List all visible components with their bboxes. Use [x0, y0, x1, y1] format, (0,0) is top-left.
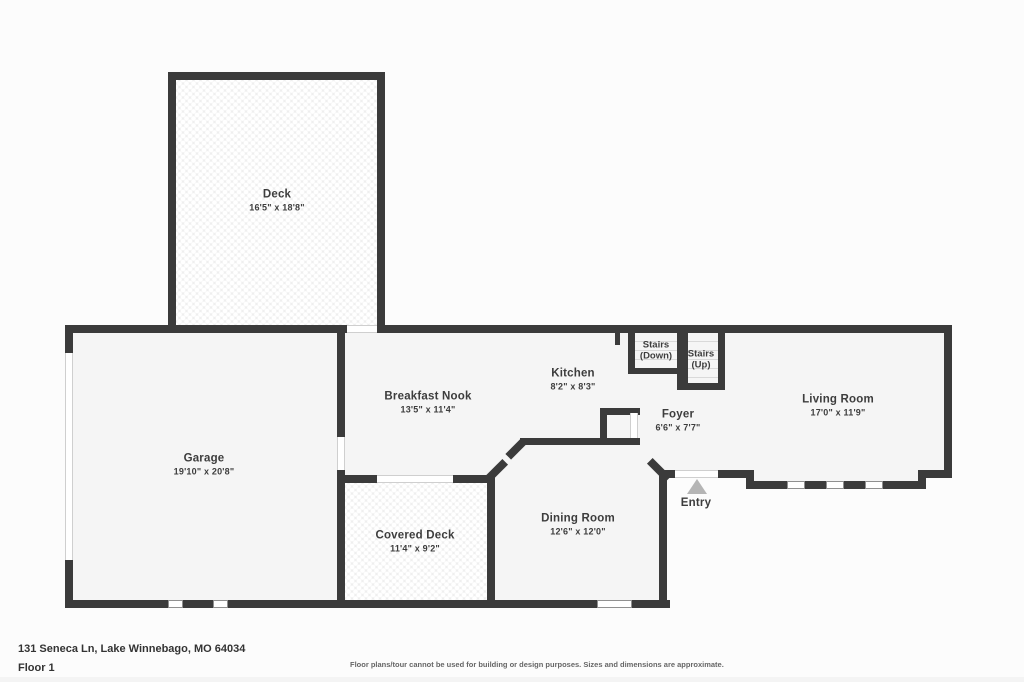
room-name: Foyer: [655, 408, 700, 422]
room-name: Breakfast Nook: [384, 390, 471, 404]
room-dims: 12'6" x 12'0": [541, 526, 615, 538]
room-dims: 8'2" x 8'3": [550, 381, 595, 393]
room-label-living-room: Living Room 17'0" x 11'9": [802, 393, 874, 420]
bottom-strip: [0, 677, 1024, 682]
room-label-stairs-up: Stairs (Up): [678, 349, 724, 372]
wall-segment: [628, 368, 682, 374]
room-name: Dining Room: [541, 512, 615, 526]
wall-segment: [944, 325, 952, 478]
room-label-entry: Entry: [681, 496, 711, 510]
room-label-foyer: Foyer 6'6" x 7'7": [655, 408, 700, 435]
wall-segment: [659, 470, 667, 608]
wall-segment: [487, 475, 495, 608]
room-name: Kitchen: [550, 367, 595, 381]
room-dims: 17'0" x 11'9": [802, 407, 874, 419]
window: [168, 600, 183, 608]
room-label-kitchen: Kitchen 8'2" x 8'3": [550, 367, 595, 394]
wall-segment: [377, 72, 385, 333]
floor-plan: Deck 16'5" x 18'8" Garage 19'10" x 20'8"…: [0, 0, 1024, 682]
room-dims: 19'10" x 20'8": [174, 466, 235, 478]
window: [597, 600, 632, 608]
wall-segment: [677, 383, 725, 390]
wall-segment: [520, 438, 640, 445]
room-label-deck: Deck 16'5" x 18'8": [249, 188, 304, 215]
footer-floor-label: Floor 1: [18, 662, 55, 674]
entry-door-opening: [675, 470, 718, 478]
garage-door: [65, 353, 73, 560]
door-opening: [347, 325, 377, 333]
footer-disclaimer: Floor plans/tour cannot be used for buil…: [350, 660, 724, 669]
room-name: Living Room: [802, 393, 874, 407]
closet-door: [630, 413, 638, 438]
room-name: Garage: [174, 452, 235, 466]
room-label-covered-deck: Covered Deck 11'4" x 9'2": [375, 529, 454, 556]
window: [787, 481, 805, 489]
room-label-garage: Garage 19'10" x 20'8": [174, 452, 235, 479]
entry-arrow-icon: [687, 479, 707, 494]
door-opening: [377, 475, 453, 483]
wall-segment: [337, 333, 345, 608]
wall-segment: [600, 408, 607, 445]
window: [213, 600, 228, 608]
wall-segment: [168, 72, 385, 80]
window: [865, 481, 883, 489]
wall-segment: [65, 600, 670, 608]
room-dims: 16'5" x 18'8": [249, 202, 304, 214]
room-dims: 11'4" x 9'2": [375, 543, 454, 555]
wall-segment: [65, 325, 952, 333]
window: [826, 481, 844, 489]
wall-segment: [659, 470, 675, 478]
room-label-stairs-down: Stairs (Down): [633, 340, 679, 363]
room-name: Entry: [681, 496, 711, 510]
room-name: Covered Deck: [375, 529, 454, 543]
door-opening: [337, 437, 345, 470]
room-dims: 13'5" x 11'4": [384, 404, 471, 416]
wall-segment: [615, 333, 620, 345]
room-dims: 6'6" x 7'7": [655, 422, 700, 434]
room-label-dining-room: Dining Room 12'6" x 12'0": [541, 512, 615, 539]
footer-address: 131 Seneca Ln, Lake Winnebago, MO 64034: [18, 643, 245, 655]
wall-segment: [168, 72, 176, 333]
room-name: Deck: [249, 188, 304, 202]
room-label-breakfast-nook: Breakfast Nook 13'5" x 11'4": [384, 390, 471, 417]
